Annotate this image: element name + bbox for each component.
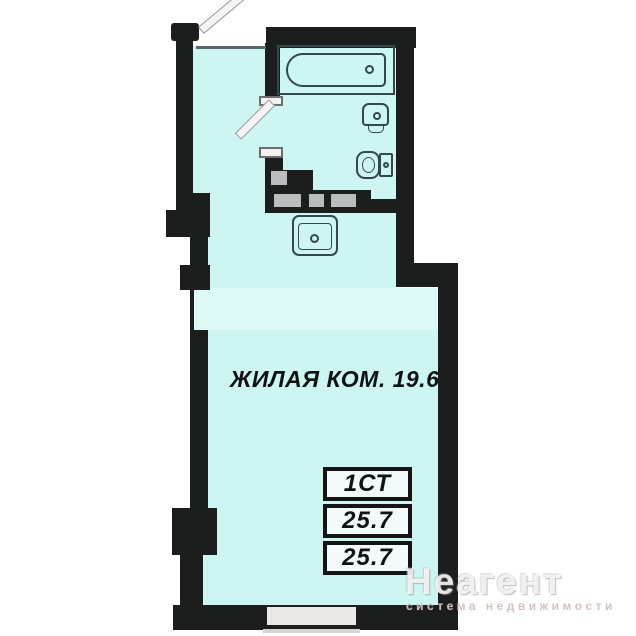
entrance-threshold bbox=[196, 46, 266, 49]
vent-shaft-4 bbox=[331, 194, 356, 207]
vent-shaft-1 bbox=[271, 171, 287, 185]
toilet-bowl-inner bbox=[362, 157, 375, 173]
info-table: 1СТ 25.7 25.7 bbox=[323, 467, 412, 575]
window-icon bbox=[267, 607, 356, 625]
toilet-button bbox=[383, 162, 389, 168]
wall-left-mid bbox=[190, 237, 208, 267]
bathroom-door-jamb-lower bbox=[259, 147, 283, 158]
wall-left-bottom bbox=[180, 555, 203, 607]
floor-plan: ЖИЛАЯ КОМ. 19.6 1СТ 25.7 25.7 Неагент си… bbox=[0, 0, 636, 636]
bathtub-drain bbox=[365, 65, 374, 74]
washbasin-drain bbox=[373, 112, 381, 120]
vent-shaft-2 bbox=[274, 194, 301, 207]
wall-right-upper bbox=[396, 48, 414, 270]
bathroom-wall-ext bbox=[371, 199, 398, 213]
wall-left-head bbox=[171, 23, 199, 41]
watermark-tagline: система недвижимости bbox=[406, 599, 616, 613]
watermark-brand: Неагент bbox=[405, 561, 563, 603]
wall-left-block3 bbox=[180, 265, 210, 290]
window-outer-line bbox=[263, 629, 360, 633]
wall-left-upper bbox=[176, 40, 193, 195]
info-table-living-area: 25.7 bbox=[323, 541, 412, 575]
wall-left-block2 bbox=[166, 210, 210, 237]
kitchen-sink-drain bbox=[310, 234, 319, 243]
left-opening-line bbox=[190, 290, 194, 330]
zone-divider-band bbox=[193, 288, 440, 330]
wall-left-pilaster bbox=[172, 508, 217, 555]
washbasin-base bbox=[368, 124, 384, 133]
info-table-total-area: 25.7 bbox=[323, 504, 412, 538]
vent-shaft-3 bbox=[309, 194, 324, 207]
bathroom-wall-step bbox=[283, 170, 313, 192]
entrance-door-leaf-icon bbox=[198, 0, 253, 34]
info-table-type: 1СТ bbox=[323, 467, 412, 501]
room-label: ЖИЛАЯ КОМ. 19.6 bbox=[230, 366, 430, 393]
wall-left-lower bbox=[190, 330, 208, 510]
wall-right-jog bbox=[396, 263, 458, 287]
wall-right-lower bbox=[438, 287, 458, 607]
